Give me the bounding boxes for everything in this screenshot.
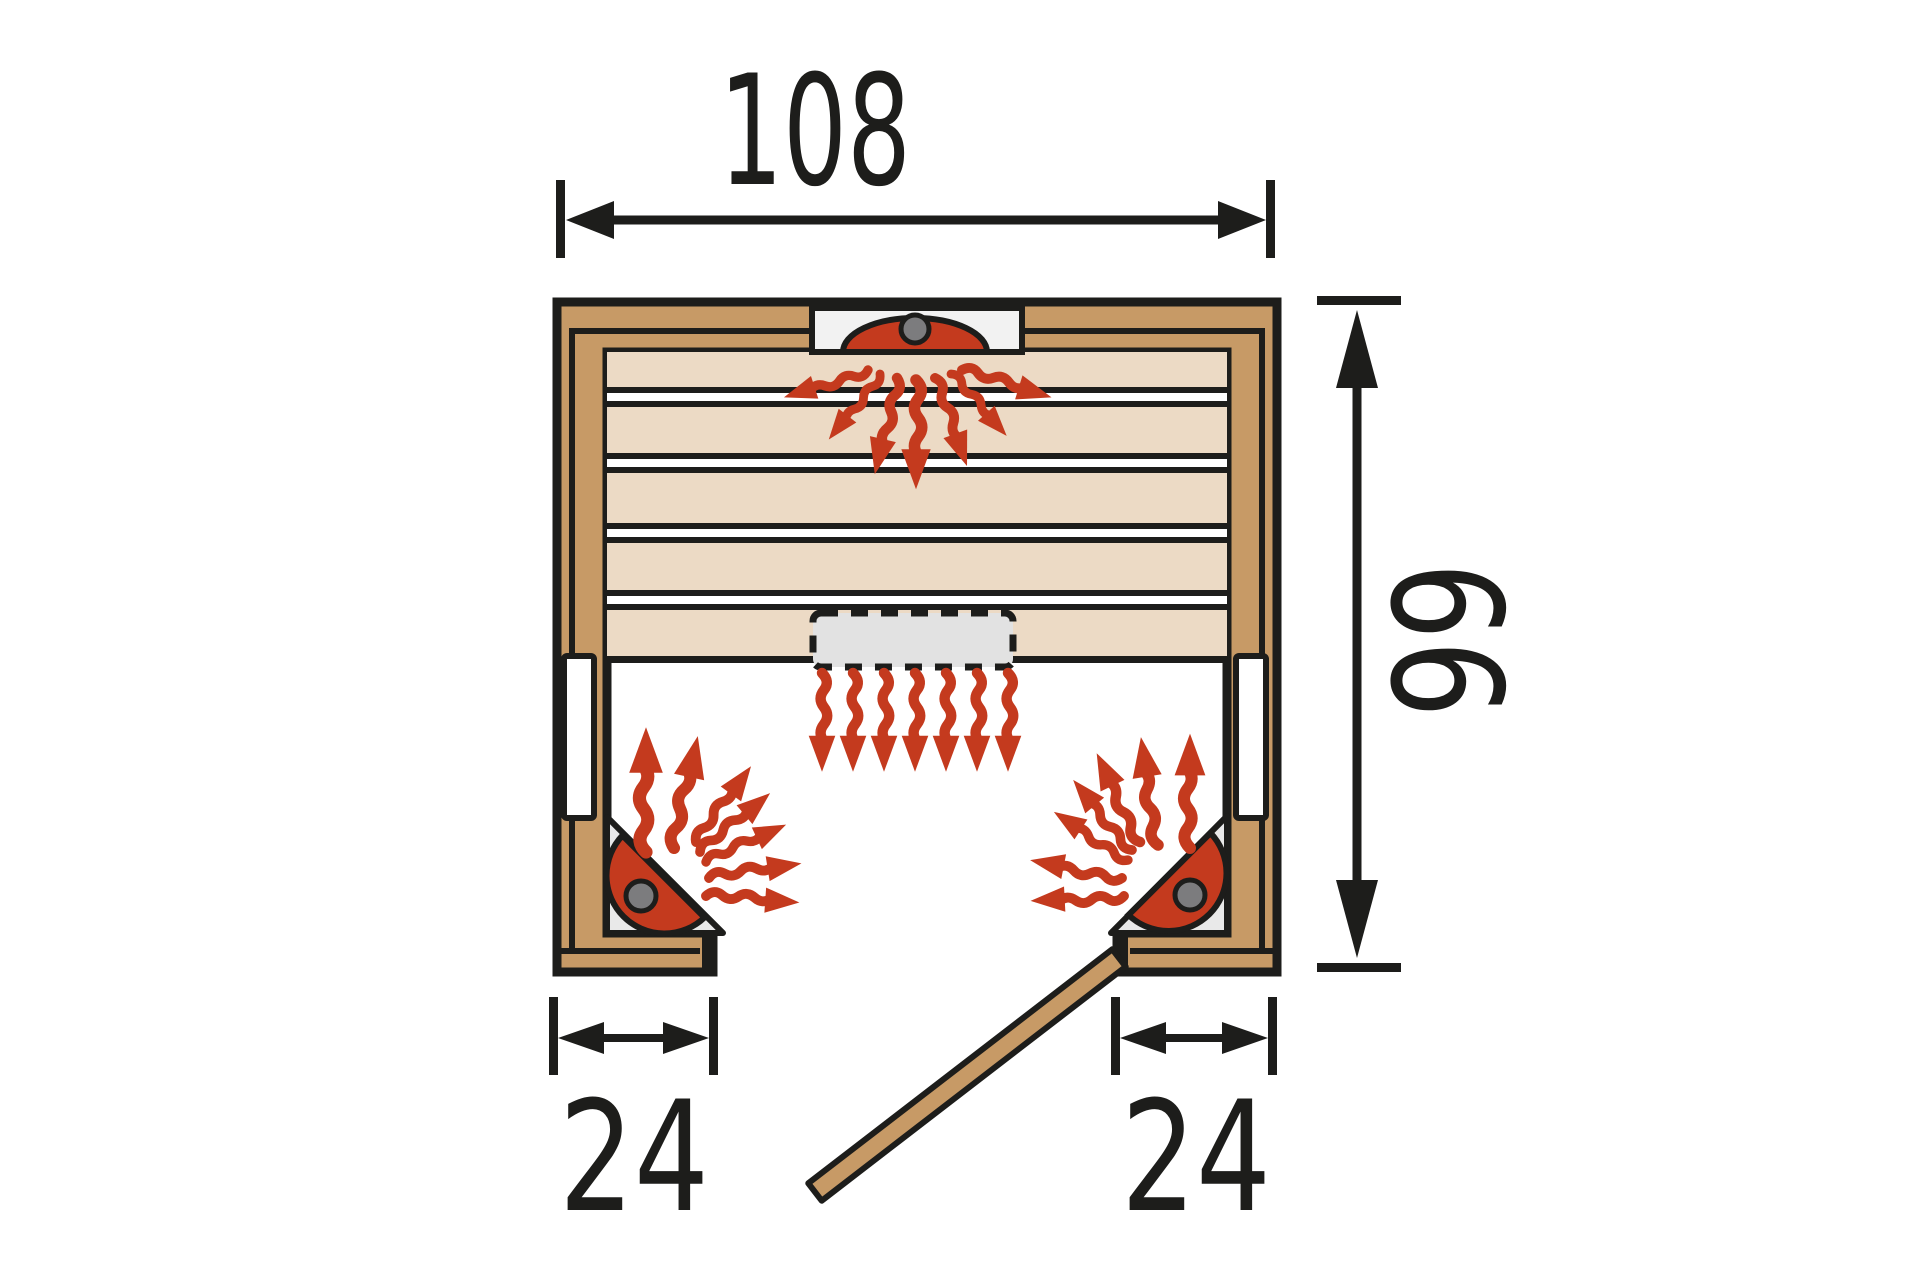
dimension-front-left: 24 — [549, 997, 718, 1247]
dimension-width-label: 108 — [719, 43, 911, 221]
arrow-up-icon — [1336, 310, 1378, 388]
under-bench-heat-arrows — [809, 673, 1022, 772]
wavy-heat-arrow-icon — [809, 673, 836, 772]
dim-tick — [709, 997, 718, 1075]
wavy-heat-arrow-icon — [902, 673, 929, 772]
arrow-right-icon — [663, 1022, 709, 1054]
heater-knob-icon — [626, 881, 656, 911]
arrow-right-icon — [1222, 1022, 1268, 1054]
wavy-heat-arrow-icon — [705, 883, 800, 915]
sauna-plan-canvas: 108 99 — [0, 0, 1920, 1281]
sauna-plan-diagram: 108 99 — [0, 0, 1920, 1281]
arrow-down-icon — [1336, 880, 1378, 958]
wavy-heat-arrow-icon — [964, 673, 991, 772]
wavy-heat-arrow-icon — [995, 673, 1022, 772]
dimension-front-right: 24 — [1111, 997, 1277, 1247]
dim-tick — [1268, 997, 1277, 1075]
dim-tick — [1266, 180, 1275, 258]
dim-tick — [549, 997, 558, 1075]
glass-panel-left — [564, 656, 594, 818]
hidden-heater-dashed-icon — [813, 613, 1013, 667]
heater-knob-icon — [1175, 880, 1205, 910]
wavy-heat-arrow-icon — [871, 673, 898, 772]
dimension-depth: 99 — [1317, 296, 1541, 972]
wavy-heat-arrow-icon — [933, 673, 960, 772]
arrow-left-icon — [1120, 1022, 1166, 1054]
dimension-depth-label: 99 — [1363, 562, 1541, 718]
dim-tick — [1317, 963, 1401, 972]
dim-tick — [556, 180, 565, 258]
heater-knob-icon — [901, 315, 929, 343]
top-heater — [812, 308, 1022, 352]
wavy-heat-arrow-icon — [1030, 883, 1125, 913]
open-door-panel-icon — [808, 949, 1125, 1200]
arrow-left-icon — [566, 201, 614, 239]
wavy-heat-arrow-icon — [840, 673, 867, 772]
wavy-heat-arrow-icon — [659, 733, 713, 851]
dimension-width: 108 — [556, 43, 1275, 258]
wavy-heat-arrow-icon — [1175, 734, 1206, 848]
arrow-left-icon — [558, 1022, 604, 1054]
dim-tick — [1317, 296, 1401, 305]
dimension-front-right-label: 24 — [1121, 1069, 1271, 1247]
under-bench-heater — [813, 613, 1013, 667]
arrow-right-icon — [1218, 201, 1266, 239]
dim-tick — [1111, 997, 1120, 1075]
door-jamb-left — [702, 933, 713, 972]
wavy-heat-arrow-icon — [629, 727, 663, 852]
dimension-front-left-label: 24 — [559, 1069, 709, 1247]
glass-panel-right — [1236, 656, 1266, 818]
